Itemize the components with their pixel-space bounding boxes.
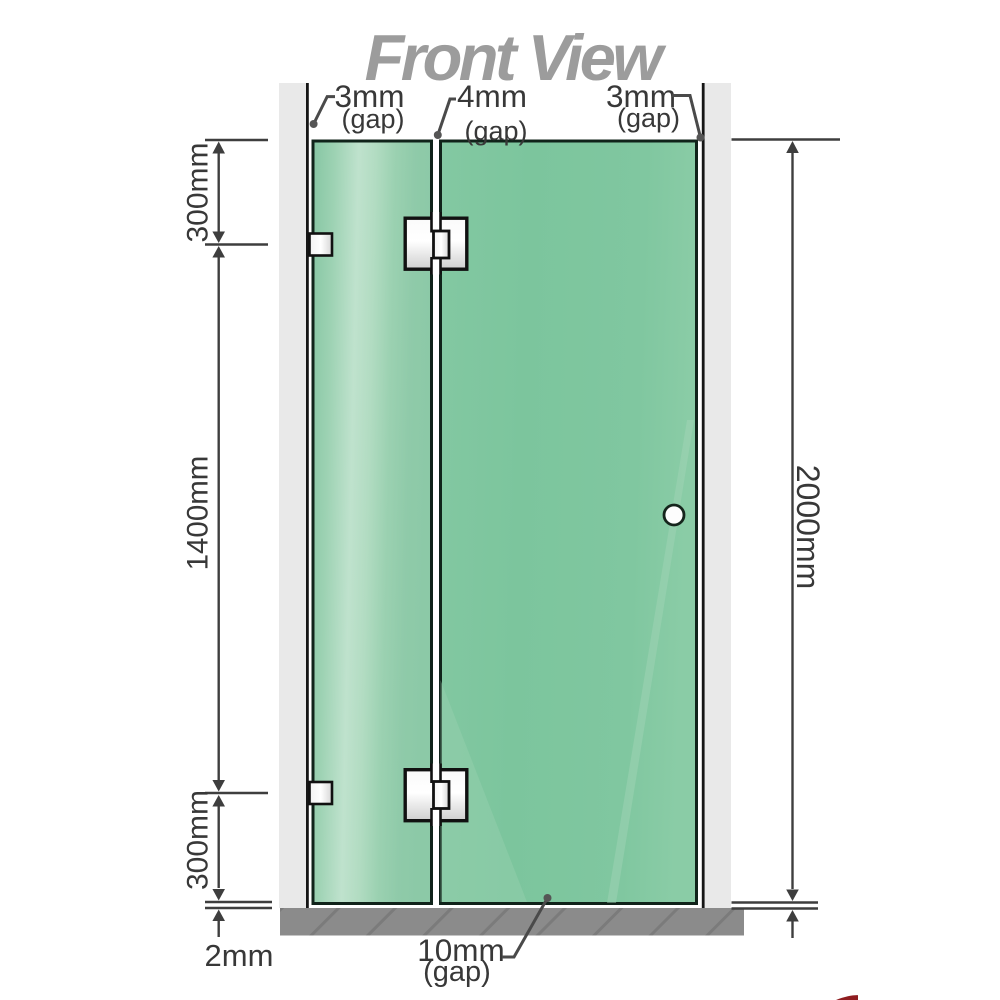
svg-text:4mm: 4mm [457,78,527,114]
svg-text:300mm: 300mm [182,142,215,242]
svg-text:(gap): (gap) [464,116,527,146]
svg-text:1400mm: 1400mm [182,456,215,571]
svg-text:2mm: 2mm [205,938,274,973]
svg-text:300mm: 300mm [182,790,215,890]
svg-text:(gap): (gap) [617,103,680,133]
svg-text:(gap): (gap) [423,956,491,988]
svg-text:2000mm: 2000mm [790,465,826,590]
svg-text:(gap): (gap) [341,104,404,134]
